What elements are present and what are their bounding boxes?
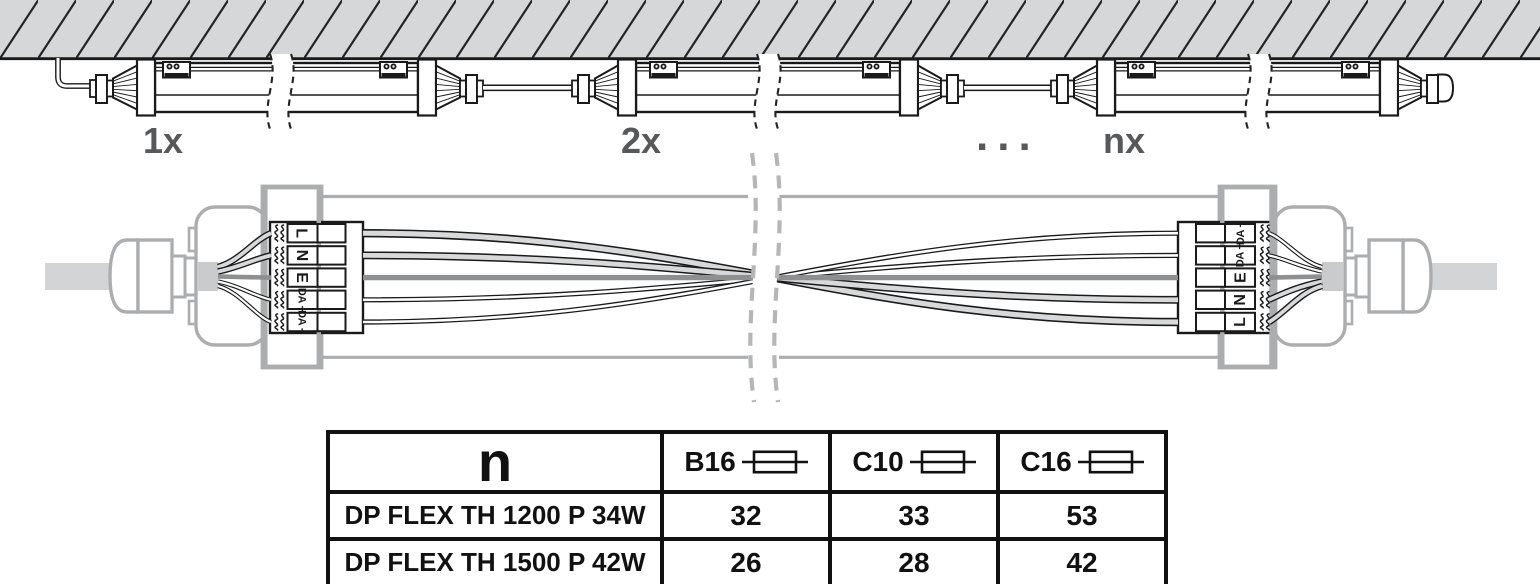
mounting-clip <box>1128 62 1155 78</box>
installation-diagram-page: 1x 2x ... nx <box>0 0 1540 584</box>
table-row: DP FLEX TH 1200 P 34W 32 33 53 <box>328 492 1166 539</box>
cable-end-left <box>197 262 218 291</box>
luminaire-3 <box>1051 54 1453 129</box>
fixture-label-2x: 2x <box>621 120 661 161</box>
terminal-label: L <box>293 228 310 238</box>
mounting-clip <box>1342 62 1369 78</box>
fuse-label: B16 <box>684 446 735 478</box>
terminal-label: N <box>293 250 310 262</box>
through-wiring-detail: L N E DA + DA − <box>45 153 1497 402</box>
terminal-label: DA + <box>1235 244 1247 268</box>
fuse-icon <box>910 449 976 475</box>
cable-end-right <box>1322 262 1343 291</box>
strain-relief-cone <box>436 66 460 110</box>
fuse-label: C10 <box>852 446 903 478</box>
mains-cable-right <box>1429 263 1497 290</box>
strain-relief-cone <box>918 66 941 110</box>
luminaire-1 <box>58 54 483 129</box>
terminal-label: N <box>1232 294 1249 306</box>
fixture-label-1x: 1x <box>143 120 183 161</box>
mounting-clip <box>380 62 407 78</box>
earth-wire <box>1269 277 1322 278</box>
ceiling <box>0 0 1540 59</box>
fuse-label: C16 <box>1020 446 1071 478</box>
luminaire-2 <box>572 54 964 129</box>
table-header-row: n B16 C10 C16 <box>328 432 1166 492</box>
mains-cable-left <box>45 263 112 290</box>
terminal-label: DA − <box>296 310 308 334</box>
terminal-label: E <box>293 272 310 283</box>
terminal-label: DA + <box>295 288 307 312</box>
table-cell: 32 <box>662 492 830 539</box>
mounting-clip <box>163 62 190 78</box>
strain-relief-cone <box>113 66 137 110</box>
fuse-icon <box>1078 449 1144 475</box>
table-cell: 28 <box>830 539 998 584</box>
fuse-rating-table: n B16 C10 C16 <box>326 430 1168 584</box>
fuse-icon <box>742 449 808 475</box>
mounting-clip <box>863 62 890 78</box>
strain-relief-cone <box>1398 66 1421 110</box>
earth-wire <box>218 277 271 278</box>
strain-relief-cone <box>1074 66 1097 110</box>
fixture-label-ellipsis: ... <box>976 111 1040 160</box>
table-cell: 33 <box>830 492 998 539</box>
table-header-c10: C10 <box>830 432 998 492</box>
table-header-c16: C16 <box>998 432 1166 492</box>
break-symbol <box>750 153 779 402</box>
terminal-label: E <box>1232 272 1249 283</box>
terminal-label: DA − <box>1235 221 1247 245</box>
cable-gland-left <box>110 240 196 312</box>
table-cell: 53 <box>998 492 1166 539</box>
mounting-clip <box>650 62 677 78</box>
supply-cable <box>58 58 91 86</box>
fixture-label-nx: nx <box>1103 120 1145 161</box>
table-row: DP FLEX TH 1500 P 42W 26 28 42 <box>328 539 1166 584</box>
table-header-b16: B16 <box>662 432 830 492</box>
product-name: DP FLEX TH 1500 P 42W <box>328 539 662 584</box>
strain-relief-cone <box>595 66 618 110</box>
cable-gland-right <box>1345 240 1431 312</box>
terminal-label: L <box>1232 317 1249 327</box>
table-cell: 26 <box>662 539 830 584</box>
end-cap <box>1438 75 1453 102</box>
product-name: DP FLEX TH 1200 P 34W <box>328 492 662 539</box>
table-header-n: n <box>328 432 662 492</box>
table-cell: 42 <box>998 539 1166 584</box>
